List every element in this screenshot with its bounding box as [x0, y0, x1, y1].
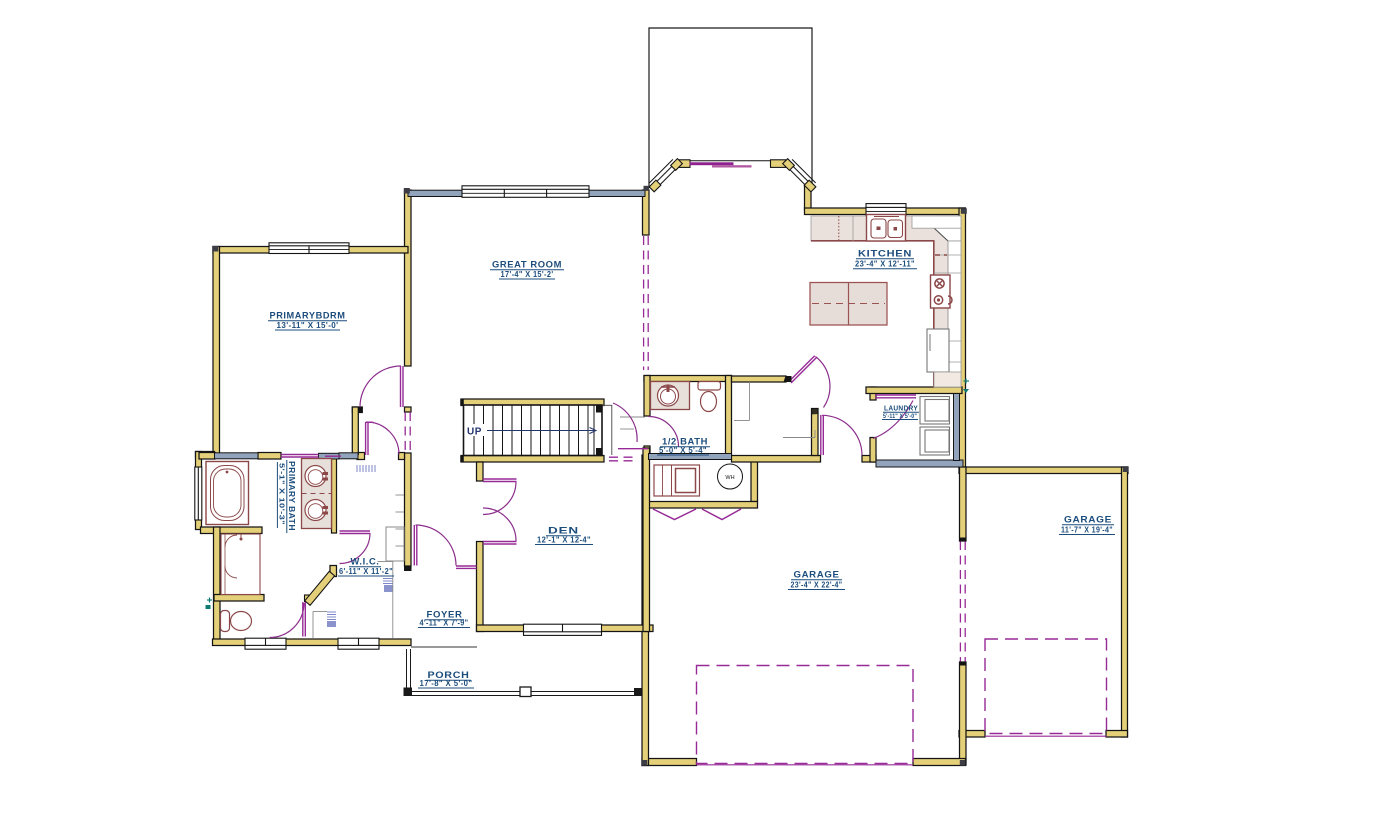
svg-text:GARAGE: GARAGE — [794, 570, 840, 581]
svg-text:GARAGE: GARAGE — [1064, 515, 1112, 526]
svg-text:5'-11" X 5'-0": 5'-11" X 5'-0" — [883, 413, 917, 420]
svg-text:LAUNDRY: LAUNDRY — [884, 406, 918, 413]
svg-text:KITCHEN: KITCHEN — [858, 249, 912, 260]
svg-text:PRIMARYBDRM: PRIMARYBDRM — [270, 311, 346, 322]
svg-text:23'-4" X 22'-4": 23'-4" X 22'-4" — [791, 581, 843, 590]
svg-text:6'-11" X 11'-2": 6'-11" X 11'-2" — [339, 567, 393, 576]
svg-text:5'-1" X 10'-3": 5'-1" X 10'-3" — [278, 463, 287, 525]
svg-text:23'-4" X 12'-11": 23'-4" X 12'-11" — [855, 260, 915, 269]
svg-text:11'-7" X 19'-4": 11'-7" X 19'-4" — [1061, 526, 1113, 535]
svg-text:17'-4" X 15'-2': 17'-4" X 15'-2' — [501, 270, 554, 279]
svg-text:PRIMARY BATH: PRIMARY BATH — [287, 461, 297, 531]
svg-text:12'-1" X 12-4": 12'-1" X 12-4" — [537, 536, 591, 545]
svg-text:13'-11" X 15'-0': 13'-11" X 15'-0' — [277, 321, 339, 330]
svg-text:GREAT ROOM: GREAT ROOM — [492, 260, 562, 271]
svg-text:WH: WH — [725, 475, 734, 481]
svg-text:UP: UP — [467, 427, 482, 438]
svg-text:W.I.C.: W.I.C. — [351, 557, 380, 568]
svg-text:5'-0" X 5'-4": 5'-0" X 5'-4" — [659, 446, 707, 455]
